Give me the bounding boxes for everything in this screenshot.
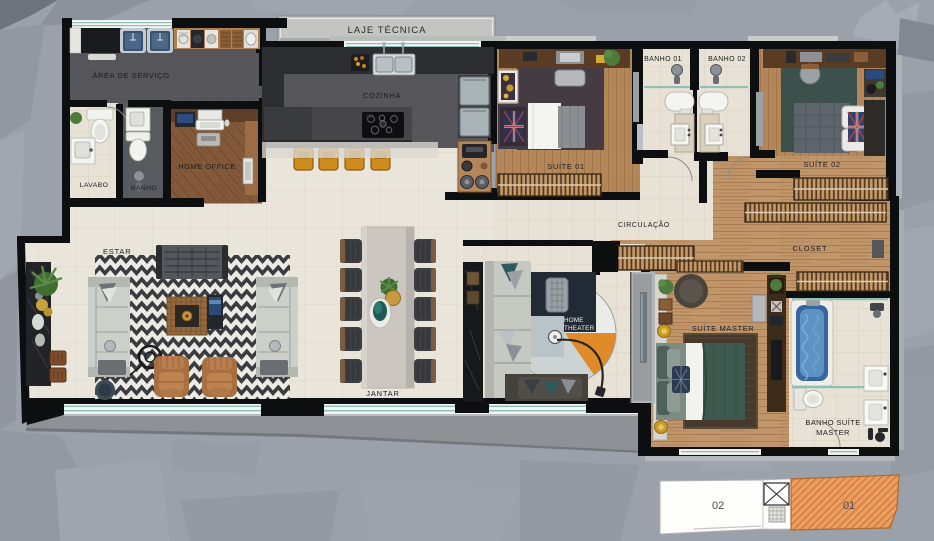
svg-text:01: 01 bbox=[843, 500, 855, 512]
svg-text:HOME OFFICE: HOME OFFICE bbox=[178, 162, 236, 171]
svg-text:ÁREA DE SERVIÇO: ÁREA DE SERVIÇO bbox=[92, 71, 169, 80]
svg-text:BANHO SUÍTE: BANHO SUÍTE bbox=[805, 418, 860, 427]
svg-text:CLOSET: CLOSET bbox=[793, 244, 828, 253]
svg-text:BANHO 01: BANHO 01 bbox=[644, 56, 682, 63]
svg-text:COZINHA: COZINHA bbox=[363, 91, 401, 100]
svg-text:HOME: HOME bbox=[564, 317, 584, 324]
svg-text:SUÍTE 01: SUÍTE 01 bbox=[547, 162, 584, 171]
svg-text:SUÍTE 02: SUÍTE 02 bbox=[803, 160, 840, 169]
svg-text:ESTAR: ESTAR bbox=[103, 247, 131, 256]
svg-text:BANHO 02: BANHO 02 bbox=[708, 56, 746, 63]
svg-text:LAJE TÉCNICA: LAJE TÉCNICA bbox=[348, 25, 427, 36]
svg-text:JANTAR: JANTAR bbox=[366, 389, 399, 398]
svg-text:THEATER: THEATER bbox=[564, 325, 595, 332]
svg-text:CIRCULAÇÃO: CIRCULAÇÃO bbox=[618, 220, 670, 229]
svg-text:SUÍTE MASTER: SUÍTE MASTER bbox=[692, 324, 755, 333]
svg-text:LAVABO: LAVABO bbox=[80, 182, 109, 189]
svg-text:02: 02 bbox=[712, 500, 724, 512]
svg-text:BANHO: BANHO bbox=[131, 185, 157, 192]
